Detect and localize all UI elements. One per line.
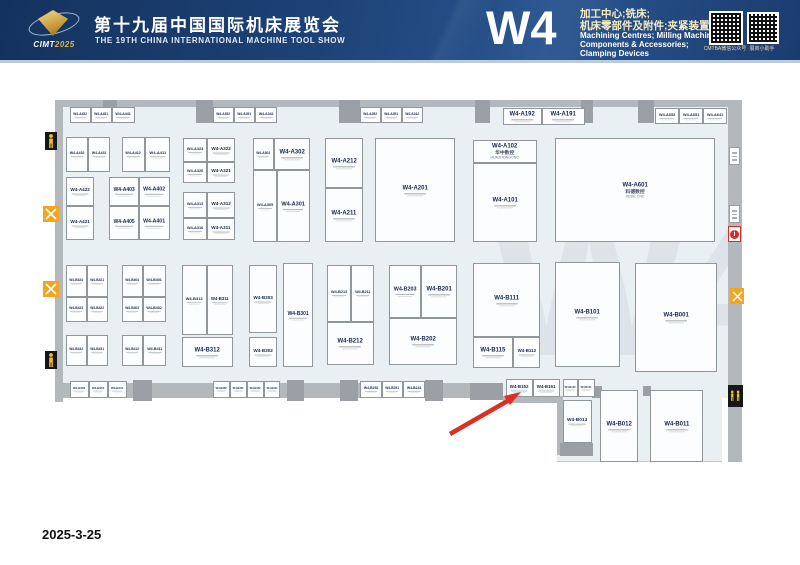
booth-W4-A302: W4-A302 xyxy=(274,138,310,170)
booth-W4-A451: W4-A451 xyxy=(91,107,112,123)
entrance-block xyxy=(133,380,152,401)
entrance-block xyxy=(425,380,443,401)
wall-sign xyxy=(729,205,740,223)
booth-W4-B423: W4-B423 xyxy=(66,297,87,322)
qr-code-assistant xyxy=(747,12,779,44)
qr-caption-assistant: 展商小助手 xyxy=(740,45,784,52)
wall-sign xyxy=(729,147,740,165)
booth-W4-A641: W4-A641 xyxy=(703,108,727,124)
booth-W4-B211: W4-B211 xyxy=(351,265,374,322)
booth-W4-A303: W4-A303 xyxy=(253,138,274,170)
booth-W4-A191: W4-A191 xyxy=(542,108,585,125)
booth-W4-A312: W4-A312 xyxy=(207,192,235,218)
booth-W4-A401: W4-A401 xyxy=(139,206,170,240)
booth-W4-A326: W4-A326 xyxy=(183,162,207,183)
entrance-block xyxy=(339,100,360,123)
booth-W4-B303: W4-B303 xyxy=(249,265,277,333)
booth-W4-B412: W4-B412 xyxy=(122,335,143,366)
booth-W4-B112: W4-B112 xyxy=(513,337,540,368)
header-banner: CIMT2025 第十九届中国国际机床展览会 THE 19TH CHINA IN… xyxy=(0,0,800,63)
booth-W4-A323: W4-A323 xyxy=(183,138,207,162)
booth-W4-A652: W4-A652 xyxy=(655,108,679,124)
hall-desc-en-3: Clamping Devices xyxy=(580,50,723,59)
booth-W4-A316: W4-A316 xyxy=(183,218,207,240)
restroom-icon xyxy=(728,385,743,407)
booth-W4-A102: W4-A102华中数控HUAZHONGCNC xyxy=(473,140,537,163)
entrance-person-icon xyxy=(45,351,57,369)
booth-W4-A412: W4-A412 xyxy=(122,137,145,172)
annex-wall-block xyxy=(560,443,593,456)
booth-W4-A301: W4-A301 xyxy=(277,170,310,242)
hall-desc-zh-1: 加工中心;铣床; xyxy=(580,9,723,21)
booth-W4-B001: W4-B001 xyxy=(635,263,717,372)
booth-W4-B252: W4-B252 xyxy=(360,381,382,398)
booth-W4-B152: W4-B152 xyxy=(506,379,533,397)
booth-W4-A251: W4-A251 xyxy=(381,107,402,123)
booth-W4-B213: W4-B213 xyxy=(327,265,351,322)
restaurant-icon xyxy=(43,281,59,297)
qr-code-cmtba xyxy=(709,11,743,45)
cimt-logo: CIMT2025 xyxy=(26,4,82,56)
booth-W4-B202: W4-B202 xyxy=(389,318,457,365)
booth-W4-B352: W4-B352 xyxy=(213,381,230,398)
entrance-block xyxy=(638,100,654,123)
booth-W4-B203: W4-B203 xyxy=(389,265,421,318)
booth-W4-B342: W4-B342 xyxy=(247,381,264,398)
booth-W4-A432: W4-A432 xyxy=(66,137,88,172)
booth-W4-A211: W4-A211 xyxy=(325,188,363,242)
booth-W4-B101: W4-B101 xyxy=(555,262,620,367)
hall-description: 加工中心;铣床; 机床零部件及附件;夹紧装置 Machining Centres… xyxy=(580,9,723,58)
booth-W4-B402: W4-B402 xyxy=(143,297,166,322)
booth-W4-A402: W4-A402 xyxy=(139,177,170,206)
qr-pattern xyxy=(749,14,777,42)
booth-W4-B301: W4-B301 xyxy=(283,263,313,367)
booth-W4-A101: W4-A101 xyxy=(473,163,537,242)
booth-W4-B302: W4-B302 xyxy=(249,337,277,367)
booth-W4-A431: W4-A431 xyxy=(88,137,110,172)
entrance-block xyxy=(475,100,490,123)
hall-floorplan: W4 W4-A432W4-A431W4-A412W4-A411W4-A422W4… xyxy=(0,62,800,532)
booth-W4-B432: W4-B432 xyxy=(66,335,87,366)
entrance-block xyxy=(470,383,503,400)
booth-W4-B012: W4-B012 xyxy=(600,390,638,462)
show-title-zh: 第十九届中国国际机床展览会 xyxy=(94,11,341,36)
first-aid-icon: i xyxy=(728,226,741,242)
booth-W4-B312: W4-B312 xyxy=(182,337,233,367)
booth-W4-B403: W4-B403 xyxy=(122,297,143,322)
entrance-block xyxy=(340,380,358,401)
booth-W4-B111: W4-B111 xyxy=(473,263,540,337)
booth-W4-A252: W4-A252 xyxy=(360,107,381,123)
booth-W4-A201: W4-A201 xyxy=(375,138,455,242)
booth-W4-B341: W4-B341 xyxy=(264,381,280,398)
booth-W4-A422: W4-A422 xyxy=(66,177,94,206)
booth-W4-B011: W4-B011 xyxy=(650,390,703,462)
booth-W4-A342: W4-A342 xyxy=(255,107,277,123)
booth-W4-B201: W4-B201 xyxy=(421,265,457,318)
booth-W4-A352: W4-A352 xyxy=(213,107,234,123)
booth-W4-B142: W4-B142 xyxy=(563,379,578,397)
booth-W4-B212: W4-B212 xyxy=(327,322,374,365)
qr-pattern xyxy=(711,13,741,43)
booth-W4-A311: W4-A311 xyxy=(207,218,235,240)
booth-W4-B151: W4-B151 xyxy=(533,379,560,397)
booth-W4-A212: W4-A212 xyxy=(325,138,363,188)
booth-W4-B251: W4-B251 xyxy=(382,381,403,398)
plan-date: 2025-3-25 xyxy=(42,527,101,542)
entrance-person-icon xyxy=(45,132,57,150)
restaurant-icon xyxy=(730,288,744,304)
booth-W4-A441: W4-A441 xyxy=(112,107,135,123)
booth-W4-A403: W4-A403 xyxy=(109,177,139,206)
booth-W4-A192: W4-A192 xyxy=(503,108,542,125)
floorplan-page: CIMT2025 第十九届中国国际机床展览会 THE 19TH CHINA IN… xyxy=(0,0,800,565)
logo-text: CIMT2025 xyxy=(26,40,82,49)
restaurant-icon xyxy=(43,206,59,222)
booth-W4-B313: W4-B313 xyxy=(182,265,207,335)
booth-W4-A322: W4-A322 xyxy=(207,138,235,162)
booth-W4-B441: W4-B441 xyxy=(108,381,127,398)
booth-W4-A411: W4-A411 xyxy=(145,137,170,172)
booth-W4-A452: W4-A452 xyxy=(70,107,91,123)
booth-W4-B141: W4-B141 xyxy=(578,379,595,397)
booth-W4-A242: W4-A242 xyxy=(402,107,423,123)
booth-W4-B404: W4-B404 xyxy=(122,265,143,297)
entrance-block xyxy=(196,100,213,123)
booth-W4-A651: W4-A651 xyxy=(679,108,703,124)
booth-W4-B452: W4-B452 xyxy=(70,381,89,398)
booth-W4-A351: W4-A351 xyxy=(234,107,255,123)
booth-W4-A305: W4-A305 xyxy=(253,170,277,242)
booth-W4-B351: W4-B351 xyxy=(230,381,247,398)
booth-W4-B424: W4-B424 xyxy=(66,265,87,297)
booth-W4-B431: W4-B431 xyxy=(87,335,108,366)
booth-W4-B311: W4-B311 xyxy=(207,265,233,335)
wall-bottom-step xyxy=(503,396,563,403)
booth-W4-A601: W4-A601科德数控KEDE CNC xyxy=(555,138,715,242)
show-title-en: THE 19TH CHINA INTERNATIONAL MACHINE TOO… xyxy=(95,36,345,45)
entrance-block xyxy=(287,380,304,401)
booth-W4-A321: W4-A321 xyxy=(207,162,235,183)
booth-W4-A313: W4-A313 xyxy=(183,192,207,218)
hall-code: W4 xyxy=(486,0,557,55)
booth-W4-B401: W4-B401 xyxy=(143,265,166,297)
booth-W4-B115: W4-B115 xyxy=(473,337,513,368)
booth-W4-B411: W4-B411 xyxy=(143,335,166,366)
booth-W4-B241: W4-B241 xyxy=(403,381,425,398)
booth-W4-B421: W4-B421 xyxy=(87,265,108,297)
booth-W4-A421: W4-A421 xyxy=(66,206,94,240)
booth-W4-A405: W4-A405 xyxy=(109,206,139,240)
booth-W4-B451: W4-B451 xyxy=(89,381,108,398)
booth-W4-B422: W4-B422 xyxy=(87,297,108,322)
booth-W4-B013: W4-B013 xyxy=(563,400,592,443)
